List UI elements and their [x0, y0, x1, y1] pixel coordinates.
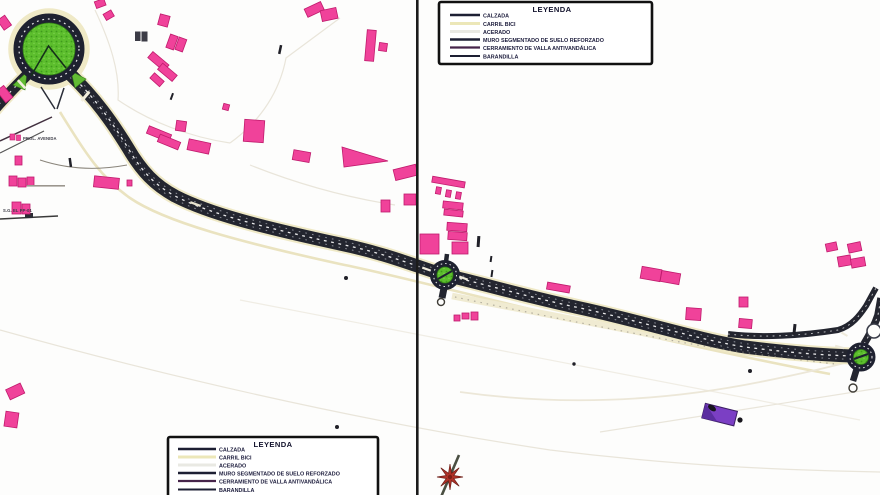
svg-text:CALZADA: CALZADA: [219, 448, 245, 454]
svg-text:MURO SEGMENTADO DE SUELO REFOR: MURO SEGMENTADO DE SUELO REFORZADO: [483, 38, 604, 44]
svg-text:LEYENDA: LEYENDA: [532, 5, 571, 14]
svg-text:CERRAMIENTO DE VALLA ANTIVANDÁ: CERRAMIENTO DE VALLA ANTIVANDÁLICA: [219, 479, 332, 486]
svg-text:MURO SEGMENTADO DE SUELO REFOR: MURO SEGMENTADO DE SUELO REFORZADO: [219, 472, 340, 478]
svg-text:BARANDILLA: BARANDILLA: [219, 488, 254, 494]
svg-text:CALZADA: CALZADA: [483, 14, 509, 20]
svg-text:CARRIL BICI: CARRIL BICI: [219, 456, 252, 462]
svg-text:S.G. EL PP-01: S.G. EL PP-01: [3, 208, 32, 213]
svg-text:BARANDILLA: BARANDILLA: [483, 55, 518, 61]
svg-text:ACERADO: ACERADO: [219, 464, 246, 470]
svg-text:CERRAMIENTO DE VALLA ANTIVANDÁ: CERRAMIENTO DE VALLA ANTIVANDÁLICA: [483, 45, 596, 52]
svg-text:PROL. AVENIDA: PROL. AVENIDA: [23, 136, 57, 141]
svg-text:ACERADO: ACERADO: [483, 30, 510, 36]
svg-text:LEYENDA: LEYENDA: [253, 440, 292, 449]
svg-text:CARRIL BICI: CARRIL BICI: [483, 22, 516, 28]
